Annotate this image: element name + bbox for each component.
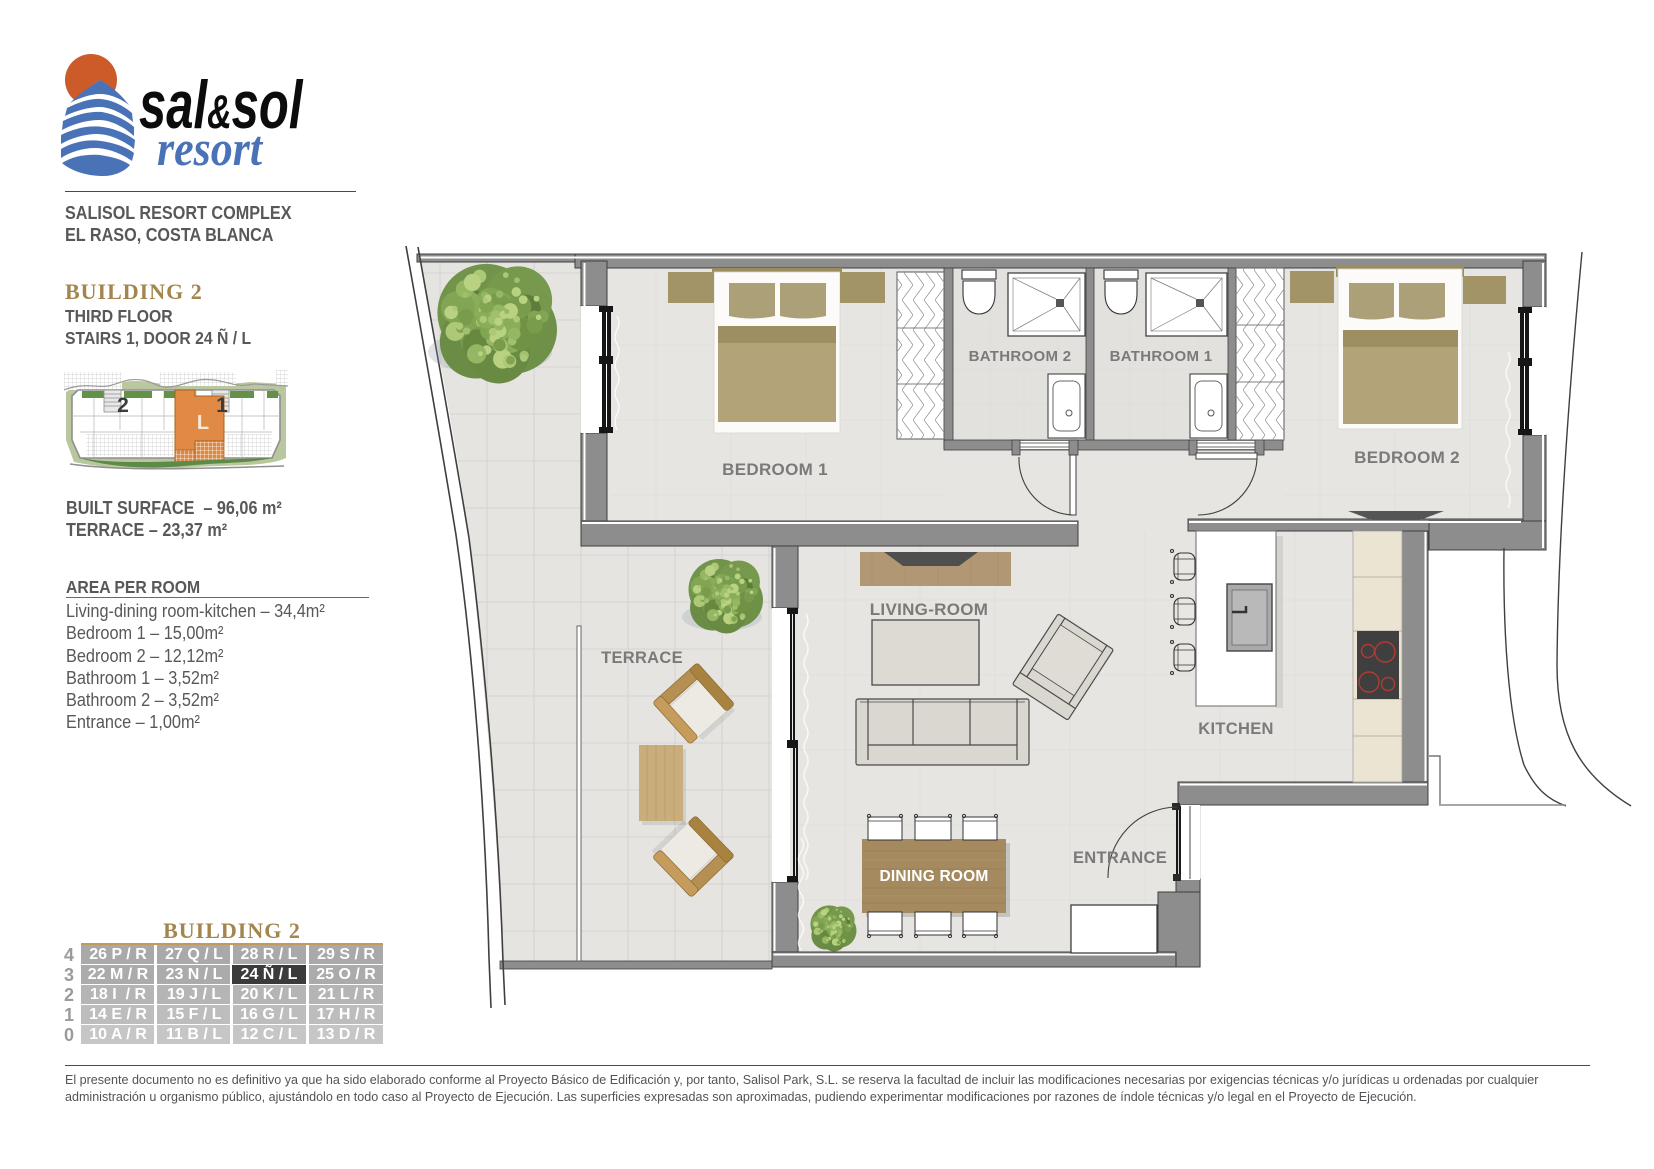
svg-text:BATHROOM 2: BATHROOM 2: [969, 348, 1072, 365]
svg-text:LIVING-ROOM: LIVING-ROOM: [870, 600, 989, 619]
svg-text:TERRACE: TERRACE: [601, 649, 683, 667]
svg-text:BEDROOM 2: BEDROOM 2: [1354, 448, 1460, 467]
svg-text:DINING ROOM: DINING ROOM: [880, 868, 989, 885]
svg-text:KITCHEN: KITCHEN: [1198, 720, 1273, 738]
svg-text:ENTRANCE: ENTRANCE: [1073, 849, 1167, 867]
svg-text:BATHROOM 1: BATHROOM 1: [1110, 348, 1213, 365]
svg-text:BEDROOM 1: BEDROOM 1: [722, 460, 828, 479]
